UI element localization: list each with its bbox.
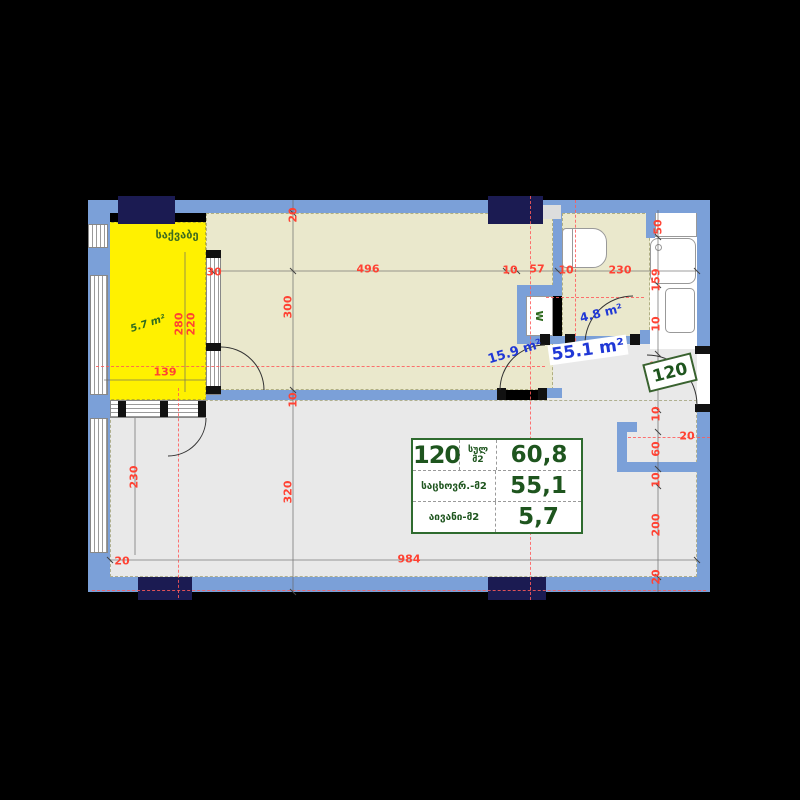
dim-label: 10 [558,264,573,277]
niche-wall-bottom [617,462,697,472]
entrance-jamb-bottom [695,404,710,412]
entrance-jamb-top [695,346,710,354]
dim-label: 10 [650,316,663,331]
balcony-row-label: აივანი-მ2 [413,512,495,523]
axis-line [530,196,531,600]
bathtub-divider [572,229,573,267]
washing-machine-mark: w [533,310,547,321]
dim-label: 984 [398,553,421,566]
table-row-balcony: აივანი-მ2 5,7 [413,501,581,532]
axis-line [178,388,179,598]
wall-notch-gray [543,205,561,219]
dim-label: 220 [185,313,198,336]
window-left-boiler [90,275,108,395]
washbasin-panel [665,288,695,333]
window-block-top-mid [488,196,543,224]
axis-line [92,590,706,591]
table-row-total: 120 სულ მ2 60,8 [413,440,581,470]
wall-fixture-stub [640,330,650,344]
door-jamb [206,343,221,351]
dim-label: 50 [652,219,665,234]
table-total-value: 60,8 [496,440,581,470]
dim-label: 300 [282,296,295,319]
wall-closet-left [517,285,526,338]
shower-drain [655,244,662,251]
wall-top [88,200,710,213]
door-jamb [630,334,640,345]
dim-label: 20 [679,430,694,443]
total-label-bottom: მ2 [472,455,483,465]
dim-label: 10 [650,472,663,487]
door-jamb [538,388,547,400]
door-jamb [198,401,206,417]
axis-line [628,437,710,438]
dim-label: 20 [650,569,663,584]
living-row-label: საცხოვრ.-მ2 [413,481,495,492]
door-jamb [160,401,168,417]
entrance-opening [697,354,710,404]
door-jamb [206,386,221,394]
dim-label: 320 [282,481,295,504]
dim-label: 60 [650,441,663,456]
living-room-area [110,400,697,577]
table-total-label: სულ მ2 [459,440,496,470]
dim-label: 230 [609,264,632,277]
wall-hall-south [206,390,500,400]
dim-label: 200 [650,514,663,537]
dim-label: 10 [650,406,663,421]
axis-line [546,297,644,298]
dim-label: 10 [287,392,300,407]
dim-label: 57 [529,263,544,276]
balcony-row-value: 5,7 [495,502,581,532]
bathtub [562,228,607,268]
dim-label: 230 [128,466,141,489]
window-block-bottom-left [138,577,192,600]
window-left-notch [88,224,108,248]
living-row-value: 55,1 [495,471,581,501]
dim-label: 496 [357,263,380,276]
window-block-bottom-mid [488,577,546,600]
window-block-top-left [118,196,175,224]
table-row-living: საცხოვრ.-მ2 55,1 [413,470,581,501]
window-left-living [90,418,108,553]
apartment-floorplan: 20 496 10 57 10 230 50 159 10 30 220 280… [88,196,710,600]
area-summary-table: 120 სულ მ2 60,8 საცხოვრ.-მ2 55,1 აივანი-… [411,438,583,534]
dim-label: 280 [173,313,186,336]
wall-hall-bath [553,213,562,288]
floorplan-canvas: 20 496 10 57 10 230 50 159 10 30 220 280… [0,0,800,800]
total-label-top: სულ [468,445,488,455]
unit-number: 120 [650,359,689,387]
axis-line [575,200,576,346]
wall-stub-south [546,388,562,398]
dim-label: 139 [154,366,177,379]
table-unit-number: 120 [413,441,459,469]
door-jamb [206,250,221,258]
door-jamb [118,401,126,417]
dim-label: 20 [114,555,129,568]
dim-label: 159 [650,269,663,292]
boiler-room-label: საქვაბე [155,229,198,242]
dim-label: 20 [287,207,300,222]
dim-label: 10 [502,264,517,277]
door-jamb [497,388,506,400]
dim-label: 30 [206,266,221,279]
